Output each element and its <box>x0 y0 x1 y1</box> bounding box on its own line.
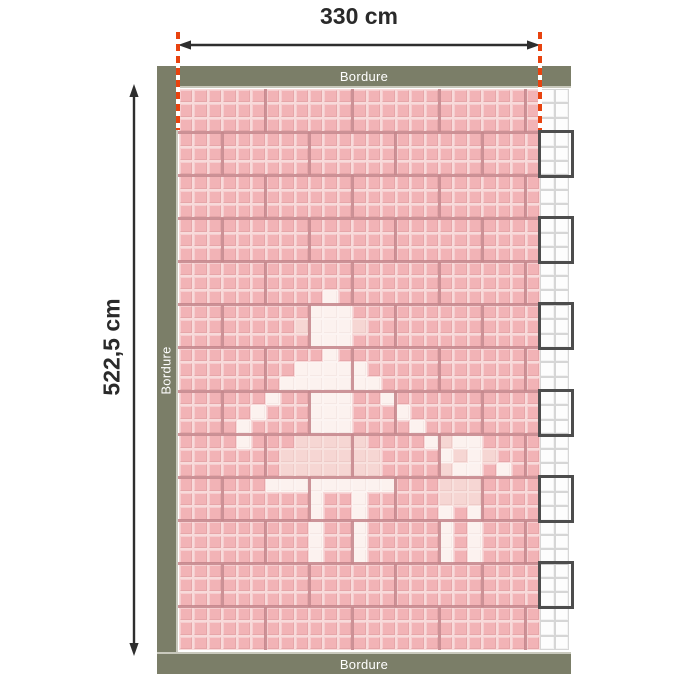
mosaic-tile <box>410 405 424 419</box>
mosaic-tile <box>381 276 395 290</box>
mosaic-tile <box>482 262 496 276</box>
mosaic-tile <box>352 233 366 247</box>
mosaic-tile <box>425 391 439 405</box>
mosaic-tile <box>295 535 309 549</box>
mosaic-tile <box>179 348 193 362</box>
mosaic-tile <box>237 564 251 578</box>
mosaic-tile <box>352 276 366 290</box>
mosaic-tile <box>468 434 482 448</box>
mosaic-tile <box>453 89 467 103</box>
brick-joint <box>394 218 397 261</box>
mosaic-tile <box>396 348 410 362</box>
brick-joint <box>438 521 441 564</box>
brick-joint <box>264 262 267 305</box>
mosaic-tile <box>323 607 337 621</box>
mosaic-tile <box>179 391 193 405</box>
mosaic-tile <box>280 262 294 276</box>
mosaic-tile <box>179 319 193 333</box>
brick-joint <box>221 132 224 175</box>
mosaic-tile <box>222 147 236 161</box>
mosaic-tile <box>222 621 236 635</box>
brick-joint <box>308 391 311 434</box>
mosaic-tile-field <box>179 89 569 650</box>
mosaic-tile <box>208 362 222 376</box>
mosaic-tile <box>410 89 424 103</box>
mosaic-tile <box>237 521 251 535</box>
mosaic-tile <box>482 535 496 549</box>
mosaic-tile <box>208 535 222 549</box>
mosaic-tile <box>425 405 439 419</box>
mosaic-tile <box>309 89 323 103</box>
mosaic-tile <box>352 607 366 621</box>
mosaic-tile <box>367 492 381 506</box>
mosaic-tile <box>309 233 323 247</box>
mosaic-tile <box>179 305 193 319</box>
mosaic-tile <box>309 521 323 535</box>
mosaic-tile <box>439 535 453 549</box>
mosaic-tile <box>309 276 323 290</box>
mosaic-tile <box>381 449 395 463</box>
brick-joint <box>178 217 541 220</box>
mosaic-tile <box>526 535 540 549</box>
mosaic-tile <box>222 262 236 276</box>
mosaic-tile <box>396 276 410 290</box>
brick-joint <box>221 391 224 434</box>
mosaic-tile <box>511 218 525 232</box>
mosaic-tile <box>396 319 410 333</box>
mosaic-tile <box>309 391 323 405</box>
mosaic-tile <box>295 521 309 535</box>
mosaic-tile <box>208 449 222 463</box>
mosaic-tile <box>266 190 280 204</box>
mosaic-tile <box>410 362 424 376</box>
mosaic-tile <box>266 578 280 592</box>
mosaic-tile <box>237 449 251 463</box>
mosaic-tile <box>251 391 265 405</box>
brick-joint <box>308 564 311 607</box>
mosaic-tile <box>511 132 525 146</box>
mosaic-tile <box>338 492 352 506</box>
mosaic-tile <box>468 103 482 117</box>
mosaic-tile <box>251 564 265 578</box>
mosaic-tile <box>468 621 482 635</box>
mosaic-tile <box>555 535 569 549</box>
mosaic-tile <box>193 607 207 621</box>
mosaic-tile <box>439 190 453 204</box>
brick-joint <box>481 218 484 261</box>
mosaic-tile <box>309 132 323 146</box>
mosaic-tile <box>482 492 496 506</box>
mosaic-tile <box>193 521 207 535</box>
mosaic-tile <box>482 276 496 290</box>
mosaic-tile <box>381 262 395 276</box>
mosaic-tile <box>396 218 410 232</box>
mosaic-tile <box>179 233 193 247</box>
mosaic-tile <box>367 449 381 463</box>
mosaic-tile <box>280 477 294 491</box>
mosaic-tile <box>295 190 309 204</box>
mosaic-tile <box>425 319 439 333</box>
mosaic-tile <box>453 535 467 549</box>
mosaic-tile <box>237 233 251 247</box>
mosaic-tile <box>193 564 207 578</box>
mosaic-tile <box>396 262 410 276</box>
mosaic-tile <box>323 233 337 247</box>
mosaic-tile <box>497 89 511 103</box>
mosaic-tile <box>425 147 439 161</box>
mosaic-tile <box>555 621 569 635</box>
mosaic-tile <box>179 521 193 535</box>
mosaic-tile <box>540 103 554 117</box>
mosaic-tile <box>439 621 453 635</box>
mosaic-tile <box>367 89 381 103</box>
mosaic-tile <box>367 348 381 362</box>
mosaic-tile <box>352 190 366 204</box>
mosaic-tile <box>410 233 424 247</box>
mosaic-tile <box>208 276 222 290</box>
mosaic-tile <box>193 305 207 319</box>
brick-joint <box>481 391 484 434</box>
brick-joint <box>524 175 527 218</box>
brick-joint <box>264 521 267 564</box>
mosaic-tile <box>396 405 410 419</box>
mosaic-tile <box>280 521 294 535</box>
mosaic-tile <box>280 132 294 146</box>
mosaic-tile <box>410 132 424 146</box>
mosaic-tile <box>555 190 569 204</box>
mosaic-tile <box>179 218 193 232</box>
mosaic-tile <box>309 607 323 621</box>
mosaic-tile <box>367 262 381 276</box>
mosaic-tile <box>410 434 424 448</box>
mosaic-tile <box>453 621 467 635</box>
mosaic-tile <box>439 175 453 189</box>
border-strip-bottom: Bordure <box>157 652 571 674</box>
mosaic-tile <box>222 449 236 463</box>
mosaic-tile <box>367 233 381 247</box>
mosaic-tile <box>468 449 482 463</box>
mosaic-tile <box>280 492 294 506</box>
mosaic-tile <box>526 449 540 463</box>
brick-joint <box>481 564 484 607</box>
mosaic-tile <box>410 391 424 405</box>
mosaic-tile <box>410 147 424 161</box>
mosaic-tile <box>237 535 251 549</box>
mosaic-tile <box>381 535 395 549</box>
mosaic-tile <box>222 405 236 419</box>
mosaic-tile <box>497 477 511 491</box>
mosaic-tile <box>453 218 467 232</box>
mosaic-tile <box>555 276 569 290</box>
mosaic-tile <box>468 636 482 650</box>
mosaic-tile <box>309 218 323 232</box>
mosaic-tile <box>309 621 323 635</box>
mosaic-tile <box>482 362 496 376</box>
brick-joint <box>178 346 541 349</box>
mosaic-tile <box>453 262 467 276</box>
mosaic-tile <box>309 636 323 650</box>
mosaic-tile <box>179 449 193 463</box>
mosaic-tile <box>396 233 410 247</box>
mosaic-tile <box>396 103 410 117</box>
mosaic-tile <box>352 405 366 419</box>
brick-joint <box>178 131 541 134</box>
mosaic-tile <box>410 175 424 189</box>
mosaic-tile <box>396 362 410 376</box>
mosaic-tile <box>280 276 294 290</box>
mosaic-tile <box>193 233 207 247</box>
mosaic-tile <box>338 405 352 419</box>
mosaic-tile <box>482 564 496 578</box>
mosaic-tile <box>352 391 366 405</box>
height-dimension-arrow <box>126 83 142 657</box>
brick-joint <box>394 564 397 607</box>
overhang-brick-outline <box>538 216 575 264</box>
mosaic-tile <box>179 362 193 376</box>
mosaic-tile <box>482 477 496 491</box>
mosaic-tile <box>482 175 496 189</box>
mosaic-tile <box>482 405 496 419</box>
mosaic-tile <box>511 305 525 319</box>
mosaic-tile <box>280 636 294 650</box>
mosaic-tile <box>295 449 309 463</box>
mosaic-tile <box>323 636 337 650</box>
mosaic-tile <box>367 405 381 419</box>
mosaic-tile <box>251 233 265 247</box>
mosaic-tile <box>208 521 222 535</box>
mosaic-tile <box>439 305 453 319</box>
mosaic-tile <box>453 103 467 117</box>
mosaic-tile <box>540 362 554 376</box>
mosaic-tile <box>266 305 280 319</box>
mosaic-tile <box>540 535 554 549</box>
mosaic-tile <box>251 319 265 333</box>
mosaic-tile <box>511 319 525 333</box>
mosaic-tile <box>222 276 236 290</box>
mosaic-tile <box>555 362 569 376</box>
mosaic-tile <box>555 449 569 463</box>
brick-joint <box>178 174 541 177</box>
mosaic-tile <box>309 103 323 117</box>
mosaic-tile <box>352 147 366 161</box>
mosaic-tile <box>540 449 554 463</box>
mosaic-tile <box>410 103 424 117</box>
brick-joint <box>438 175 441 218</box>
mosaic-tile <box>410 564 424 578</box>
mosaic-tile <box>540 89 554 103</box>
mosaic-tile <box>193 434 207 448</box>
mosaic-tile <box>222 477 236 491</box>
mosaic-tile <box>251 477 265 491</box>
brick-joint <box>264 348 267 391</box>
brick-joint <box>481 305 484 348</box>
mosaic-tile <box>453 147 467 161</box>
mosaic-tile <box>193 103 207 117</box>
mosaic-tile <box>237 621 251 635</box>
mosaic-tile <box>237 190 251 204</box>
mosaic-tile <box>193 147 207 161</box>
mosaic-tile <box>482 103 496 117</box>
mosaic-tile <box>352 218 366 232</box>
mosaic-tile <box>468 535 482 549</box>
brick-joint <box>308 132 311 175</box>
brick-joint <box>221 305 224 348</box>
mosaic-tile <box>179 190 193 204</box>
mosaic-tile <box>453 521 467 535</box>
mosaic-tile <box>367 132 381 146</box>
mosaic-tile <box>468 175 482 189</box>
mosaic-tile <box>482 89 496 103</box>
mosaic-tile <box>309 564 323 578</box>
mosaic-tile <box>309 305 323 319</box>
mosaic-tile <box>439 521 453 535</box>
mosaic-tile <box>453 362 467 376</box>
mosaic-tile <box>482 218 496 232</box>
mosaic-tile <box>497 636 511 650</box>
mosaic-tile <box>526 621 540 635</box>
bordure-label-bottom: Bordure <box>340 657 388 672</box>
mosaic-tile <box>497 492 511 506</box>
mosaic-tile <box>179 564 193 578</box>
mosaic-tile <box>222 564 236 578</box>
mosaic-tile <box>526 362 540 376</box>
mosaic-tile <box>237 348 251 362</box>
width-dimension-label: 330 cm <box>179 3 539 30</box>
mosaic-tile <box>179 276 193 290</box>
mosaic-tile <box>396 521 410 535</box>
mosaic-tile <box>410 262 424 276</box>
mosaic-tile <box>193 362 207 376</box>
mosaic-tile <box>280 621 294 635</box>
mosaic-tile <box>193 319 207 333</box>
mosaic-tile <box>222 578 236 592</box>
mosaic-tile <box>222 175 236 189</box>
brick-joint <box>524 607 527 650</box>
brick-joint <box>308 218 311 261</box>
brick-joint <box>394 305 397 348</box>
mosaic-tile <box>453 276 467 290</box>
mosaic-tile <box>266 103 280 117</box>
mosaic-tile <box>453 190 467 204</box>
mosaic-tile <box>266 147 280 161</box>
mosaic-tile <box>266 607 280 621</box>
mosaic-tile <box>482 132 496 146</box>
mosaic-tile <box>468 348 482 362</box>
mosaic-tile <box>193 578 207 592</box>
mosaic-tile <box>410 305 424 319</box>
brick-joint <box>351 521 354 564</box>
brick-joint <box>178 562 541 565</box>
mosaic-tile <box>526 636 540 650</box>
mosaic-tile <box>237 477 251 491</box>
mosaic-tile <box>309 175 323 189</box>
mosaic-tile <box>266 405 280 419</box>
mosaic-tile <box>237 132 251 146</box>
mosaic-tile <box>193 218 207 232</box>
mosaic-tile <box>295 89 309 103</box>
mosaic-tile <box>439 492 453 506</box>
mosaic-tile <box>193 405 207 419</box>
mosaic-tile <box>381 190 395 204</box>
mosaic-tile <box>295 434 309 448</box>
mosaic-tile <box>179 103 193 117</box>
mosaic-tile <box>352 578 366 592</box>
mosaic-tile <box>309 319 323 333</box>
mosaic-tile <box>309 449 323 463</box>
mosaic-tile <box>381 175 395 189</box>
mosaic-tile <box>453 391 467 405</box>
mosaic-tile <box>280 218 294 232</box>
mosaic-tile <box>208 190 222 204</box>
mosaic-tile <box>309 147 323 161</box>
mosaic-tile <box>309 362 323 376</box>
mosaic-tile <box>179 607 193 621</box>
brick-joint <box>264 607 267 650</box>
mosaic-tile <box>323 564 337 578</box>
mosaic-tile <box>468 262 482 276</box>
mosaic-tile <box>266 535 280 549</box>
mosaic-tile <box>396 449 410 463</box>
brick-joint <box>178 390 541 393</box>
mosaic-tile <box>367 319 381 333</box>
mosaic-tile <box>439 362 453 376</box>
mosaic-tile <box>208 636 222 650</box>
mosaic-tile <box>410 348 424 362</box>
mosaic-tile <box>410 477 424 491</box>
mosaic-tile <box>410 492 424 506</box>
mosaic-tile <box>323 147 337 161</box>
mosaic-tile <box>222 190 236 204</box>
mosaic-tile <box>193 190 207 204</box>
mosaic-tile <box>309 578 323 592</box>
mosaic-tile <box>497 319 511 333</box>
mosaic-tile <box>338 233 352 247</box>
mosaic-tile <box>396 190 410 204</box>
mosaic-tile <box>453 477 467 491</box>
mosaic-tile <box>425 218 439 232</box>
mosaic-tile <box>295 348 309 362</box>
mosaic-tile <box>367 175 381 189</box>
mosaic-tile <box>179 578 193 592</box>
mosaic-tile <box>497 175 511 189</box>
mosaic-tile <box>222 132 236 146</box>
mosaic-tile <box>222 362 236 376</box>
mosaic-tile <box>266 621 280 635</box>
mosaic-tile <box>425 132 439 146</box>
mosaic-tile <box>439 578 453 592</box>
brick-joint <box>524 262 527 305</box>
mosaic-tile <box>439 449 453 463</box>
mosaic-tile <box>295 621 309 635</box>
brick-joint <box>524 348 527 391</box>
mosaic-tile <box>453 233 467 247</box>
mosaic-tile <box>439 262 453 276</box>
mosaic-tile <box>367 535 381 549</box>
mosaic-tile <box>497 233 511 247</box>
mosaic-tile <box>295 607 309 621</box>
mosaic-tile <box>309 477 323 491</box>
mosaic-tile <box>222 636 236 650</box>
mosaic-tile <box>295 362 309 376</box>
mosaic-tile <box>309 348 323 362</box>
mosaic-tile <box>439 477 453 491</box>
mosaic-tile <box>468 362 482 376</box>
brick-joint <box>438 348 441 391</box>
paving-layout-diagram: 330 cm 522,5 cm Bordure Bordure Bordure <box>0 0 675 675</box>
mosaic-tile <box>222 103 236 117</box>
mosaic-tile <box>280 564 294 578</box>
mosaic-tile <box>179 492 193 506</box>
